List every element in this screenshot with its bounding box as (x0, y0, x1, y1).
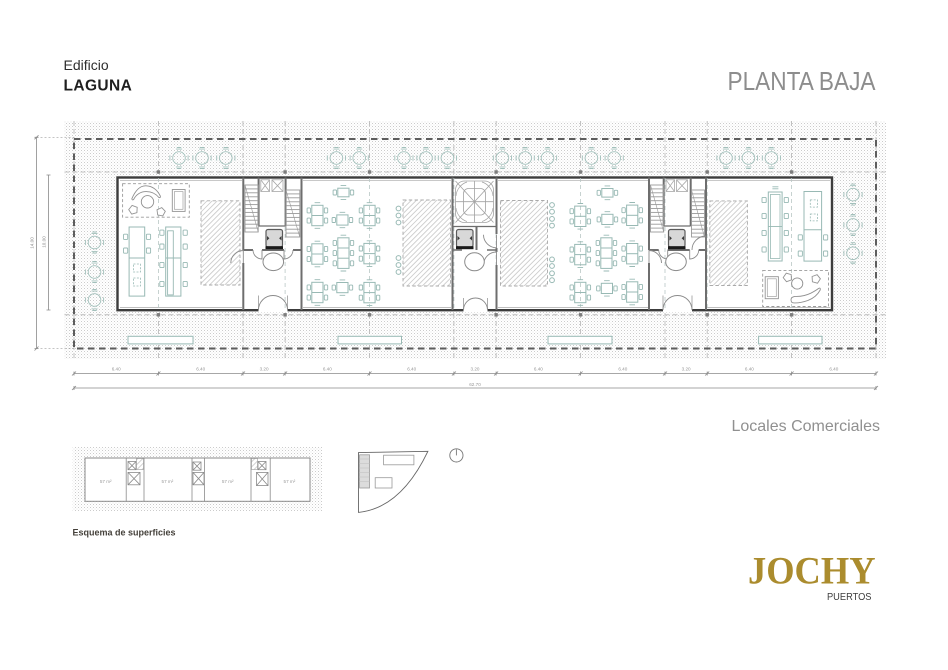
svg-text:57 m²: 57 m² (284, 479, 296, 484)
svg-text:Locales Comerciales: Locales Comerciales (731, 418, 880, 435)
svg-text:6.40: 6.40 (323, 367, 332, 372)
svg-text:14.00: 14.00 (30, 237, 35, 249)
svg-text:JOCHY: JOCHY (748, 550, 876, 593)
svg-text:PLANTA BAJA: PLANTA BAJA (728, 66, 877, 96)
svg-text:57 m²: 57 m² (162, 479, 174, 484)
svg-text:57 m²: 57 m² (100, 479, 112, 484)
svg-text:3.20: 3.20 (260, 367, 269, 372)
svg-text:PUERTOS: PUERTOS (827, 592, 872, 603)
svg-text:57 m²: 57 m² (222, 479, 234, 484)
svg-text:Edificio: Edificio (64, 57, 109, 73)
svg-text:6.40: 6.40 (112, 367, 121, 372)
svg-text:62.70: 62.70 (469, 382, 481, 387)
svg-text:Esquema de superficies: Esquema de superficies (73, 528, 176, 538)
svg-text:6.40: 6.40 (618, 367, 627, 372)
svg-text:6.40: 6.40 (196, 367, 205, 372)
svg-text:6.40: 6.40 (407, 367, 416, 372)
svg-text:6.40: 6.40 (534, 367, 543, 372)
svg-text:3.20: 3.20 (471, 367, 480, 372)
svg-text:6.40: 6.40 (829, 367, 838, 372)
svg-text:3.20: 3.20 (682, 367, 691, 372)
svg-text:LAGUNA: LAGUNA (64, 78, 133, 95)
svg-text:6.40: 6.40 (745, 367, 754, 372)
svg-text:10.00: 10.00 (42, 236, 47, 248)
